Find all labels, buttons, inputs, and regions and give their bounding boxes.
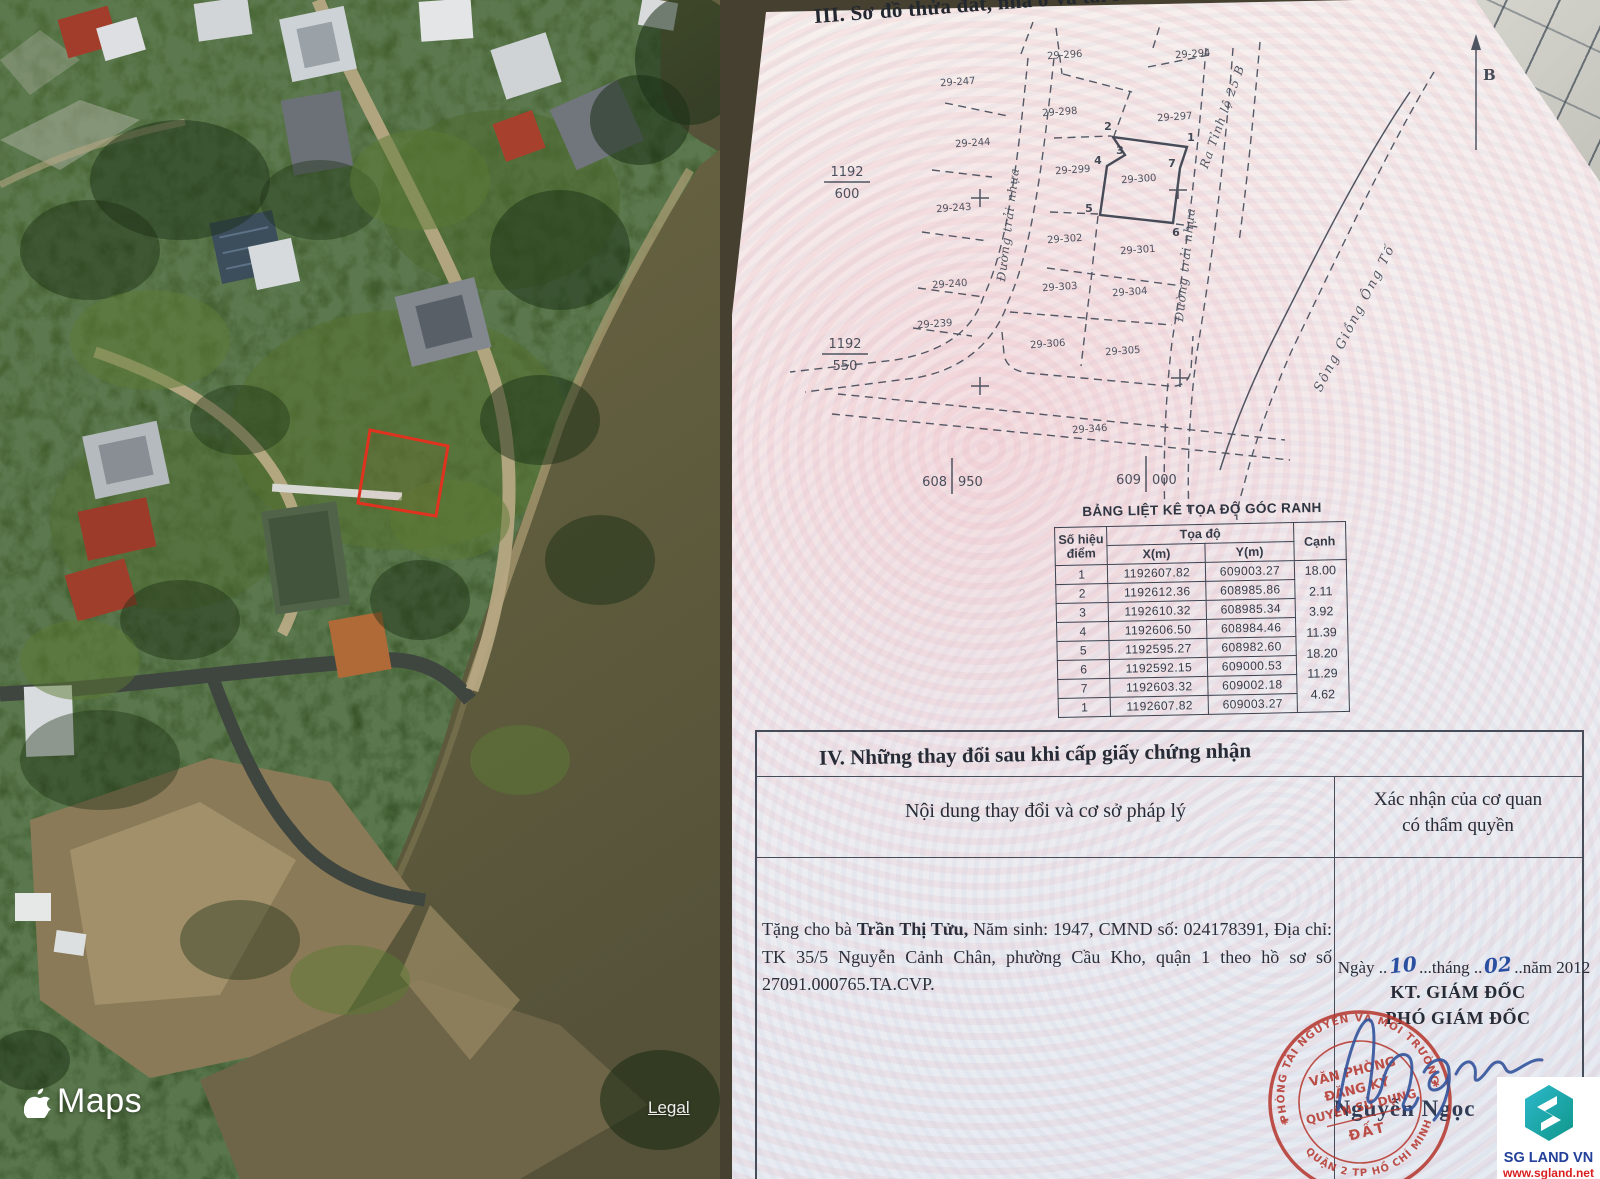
point-y: 609000.53 — [1208, 656, 1297, 677]
col-right-line2: có thẩm quyền — [1334, 813, 1582, 839]
legal-link[interactable]: Legal — [648, 1098, 690, 1118]
date-line: Ngày ..10...tháng ..02..năm 2012 — [1334, 954, 1594, 978]
edge-value: 18.20 — [1296, 645, 1348, 660]
parcel-label: 29-305 — [1105, 345, 1141, 358]
parcel-label: 29-304 — [1112, 286, 1148, 299]
point-id: 4 — [1057, 621, 1110, 641]
north-label: B — [1483, 66, 1496, 84]
parcel-label: 29-294 — [1175, 48, 1211, 61]
parcel-label: 29-239 — [917, 318, 953, 331]
date-suffix: ..năm 2012 — [1514, 958, 1590, 977]
edge-value: 3.92 — [1295, 604, 1347, 619]
sgland-watermark: SG LAND VN www.sgland.net — [1497, 1077, 1600, 1179]
col-right-line1: Xác nhận của cơ quan — [1334, 787, 1582, 813]
point-x: 1192592.15 — [1110, 657, 1208, 678]
satellite-imagery — [0, 0, 720, 1179]
point-x: 1192612.36 — [1108, 581, 1206, 602]
parcel-label: 29-296 — [1047, 49, 1083, 62]
point-x: 1192607.82 — [1110, 695, 1208, 716]
parcel-label: 29-247 — [940, 76, 976, 89]
grid-label: 608 — [922, 475, 947, 490]
parcel-label: 29-244 — [955, 137, 991, 150]
parcel-label: 29-297 — [1157, 111, 1193, 124]
road-label-right: Đường trải nhựa — [1172, 207, 1198, 323]
parcel-outline — [358, 430, 448, 516]
col-x: X(m) — [1107, 543, 1205, 564]
north-arrow: B — [1471, 34, 1496, 150]
date-prefix: Ngày .. — [1338, 958, 1388, 977]
col-edge: Cạnh — [1293, 521, 1346, 560]
grid-label: 600 — [835, 187, 860, 202]
point-y: 608985.86 — [1206, 580, 1295, 601]
vertex-label: 1 — [1187, 131, 1195, 144]
edge-value: 2.11 — [1295, 584, 1347, 599]
date-month-handwritten: 02 — [1481, 951, 1515, 978]
point-y: 608982.60 — [1207, 637, 1296, 658]
parcel-label: 29-298 — [1042, 106, 1078, 119]
col-y: Y(m) — [1205, 542, 1294, 563]
vertex-label: 4 — [1094, 154, 1102, 167]
point-y: 608984.46 — [1207, 618, 1296, 639]
road-label-left: Đường trải nhựa — [994, 167, 1022, 283]
apple-maps-watermark: Maps — [24, 1082, 142, 1121]
grid-label: 950 — [958, 475, 983, 490]
edge-value: 18.00 — [1294, 563, 1346, 578]
grid-label: 550 — [833, 359, 858, 374]
date-mid: ...tháng .. — [1419, 958, 1482, 977]
section4-title: IV. Những thay đổi sau khi cấp giấy chứn… — [819, 738, 1252, 771]
parcel-label: 29-243 — [936, 202, 972, 215]
vertex-label: 5 — [1085, 202, 1093, 215]
grid-label: 1192 — [828, 337, 861, 352]
point-x: 1192610.32 — [1108, 600, 1206, 621]
parcel-label: 29-306 — [1030, 338, 1066, 351]
entry-prefix: Tặng cho bà — [762, 919, 857, 939]
point-y: 609003.27 — [1208, 694, 1297, 715]
maps-brand-label: Maps — [57, 1082, 142, 1121]
col-point-1: Số hiệu — [1058, 532, 1103, 547]
edge-value: 11.39 — [1296, 625, 1348, 640]
vertex-label: 6 — [1172, 226, 1180, 239]
entry-owner-name: Trần Thị Tửu, — [857, 919, 968, 939]
land-certificate-photo: III. Sơ đồ thửa đất, nhà ở và tài sản kh… — [720, 0, 1600, 1179]
col-point-2: điểm — [1067, 546, 1096, 561]
satellite-map[interactable]: Maps Legal — [0, 0, 720, 1179]
sgland-name: SG LAND VN — [1497, 1150, 1600, 1166]
parcel-label: 29-299 — [1055, 164, 1091, 177]
apple-logo-icon — [24, 1086, 51, 1118]
parcel-label: 29-240 — [932, 278, 968, 291]
grid-label: 609 — [1116, 473, 1141, 488]
road-label-exit: Ra Tỉnh lộ 25 B — [1197, 63, 1248, 171]
divider — [757, 776, 1582, 777]
point-y: 609002.18 — [1208, 675, 1297, 696]
section4-col-right-header: Xác nhận của cơ quan có thẩm quyền — [1334, 787, 1582, 839]
point-id: 7 — [1058, 678, 1111, 698]
edge-value: 11.29 — [1297, 666, 1349, 681]
point-id: 2 — [1056, 583, 1109, 603]
parcel-label: 29-346 — [1072, 423, 1108, 436]
sgland-site: www.sgland.net — [1497, 1166, 1600, 1179]
edge-value: 4.62 — [1297, 687, 1349, 702]
point-id: 5 — [1057, 640, 1110, 660]
section4-col-left-header: Nội dung thay đổi và cơ sở pháp lý — [757, 800, 1334, 823]
sgland-logo-icon — [1521, 1082, 1577, 1144]
vertex-label: 2 — [1104, 120, 1112, 133]
point-id: 1 — [1058, 697, 1111, 717]
cadastral-diagram: 1192 600 1192 550 608 950 609 000 B — [720, 20, 1600, 520]
point-id: 3 — [1056, 602, 1109, 622]
parcel-label: 29-303 — [1042, 281, 1078, 294]
point-id: 6 — [1057, 659, 1110, 679]
transfer-entry: Tặng cho bà Trần Thị Tửu, Năm sinh: 1947… — [762, 916, 1332, 999]
vertex-label: 3 — [1116, 144, 1124, 157]
edge-lengths: 18.00 2.11 3.92 11.39 18.20 11.29 4.62 — [1294, 560, 1348, 705]
vertex-label: 7 — [1168, 157, 1176, 170]
point-x: 1192606.50 — [1109, 619, 1207, 640]
point-y: 608985.34 — [1207, 599, 1296, 620]
parcel-label: 29-301 — [1120, 244, 1156, 257]
grid-label: 000 — [1152, 473, 1177, 488]
coordinate-table: Số hiệu điểm Tọa độ Cạnh X(m) Y(m) 1 119… — [1054, 521, 1350, 718]
parcel-label: 29-302 — [1047, 233, 1083, 246]
grid-label: 1192 — [830, 165, 863, 180]
river-label: Sông Giồng Ông Tố — [1309, 241, 1398, 394]
date-day-handwritten: 10 — [1386, 951, 1420, 978]
divider — [757, 857, 1582, 858]
parcel-label: 29-300 — [1121, 173, 1157, 186]
listing-collage: Maps Legal III. Sơ đồ thửa đất, nhà ở và… — [0, 0, 1600, 1179]
point-x: 1192603.32 — [1110, 676, 1208, 697]
point-x: 1192595.27 — [1109, 638, 1207, 659]
point-x: 1192607.82 — [1108, 562, 1206, 583]
point-id: 1 — [1055, 564, 1108, 584]
point-y: 609003.27 — [1206, 561, 1295, 582]
